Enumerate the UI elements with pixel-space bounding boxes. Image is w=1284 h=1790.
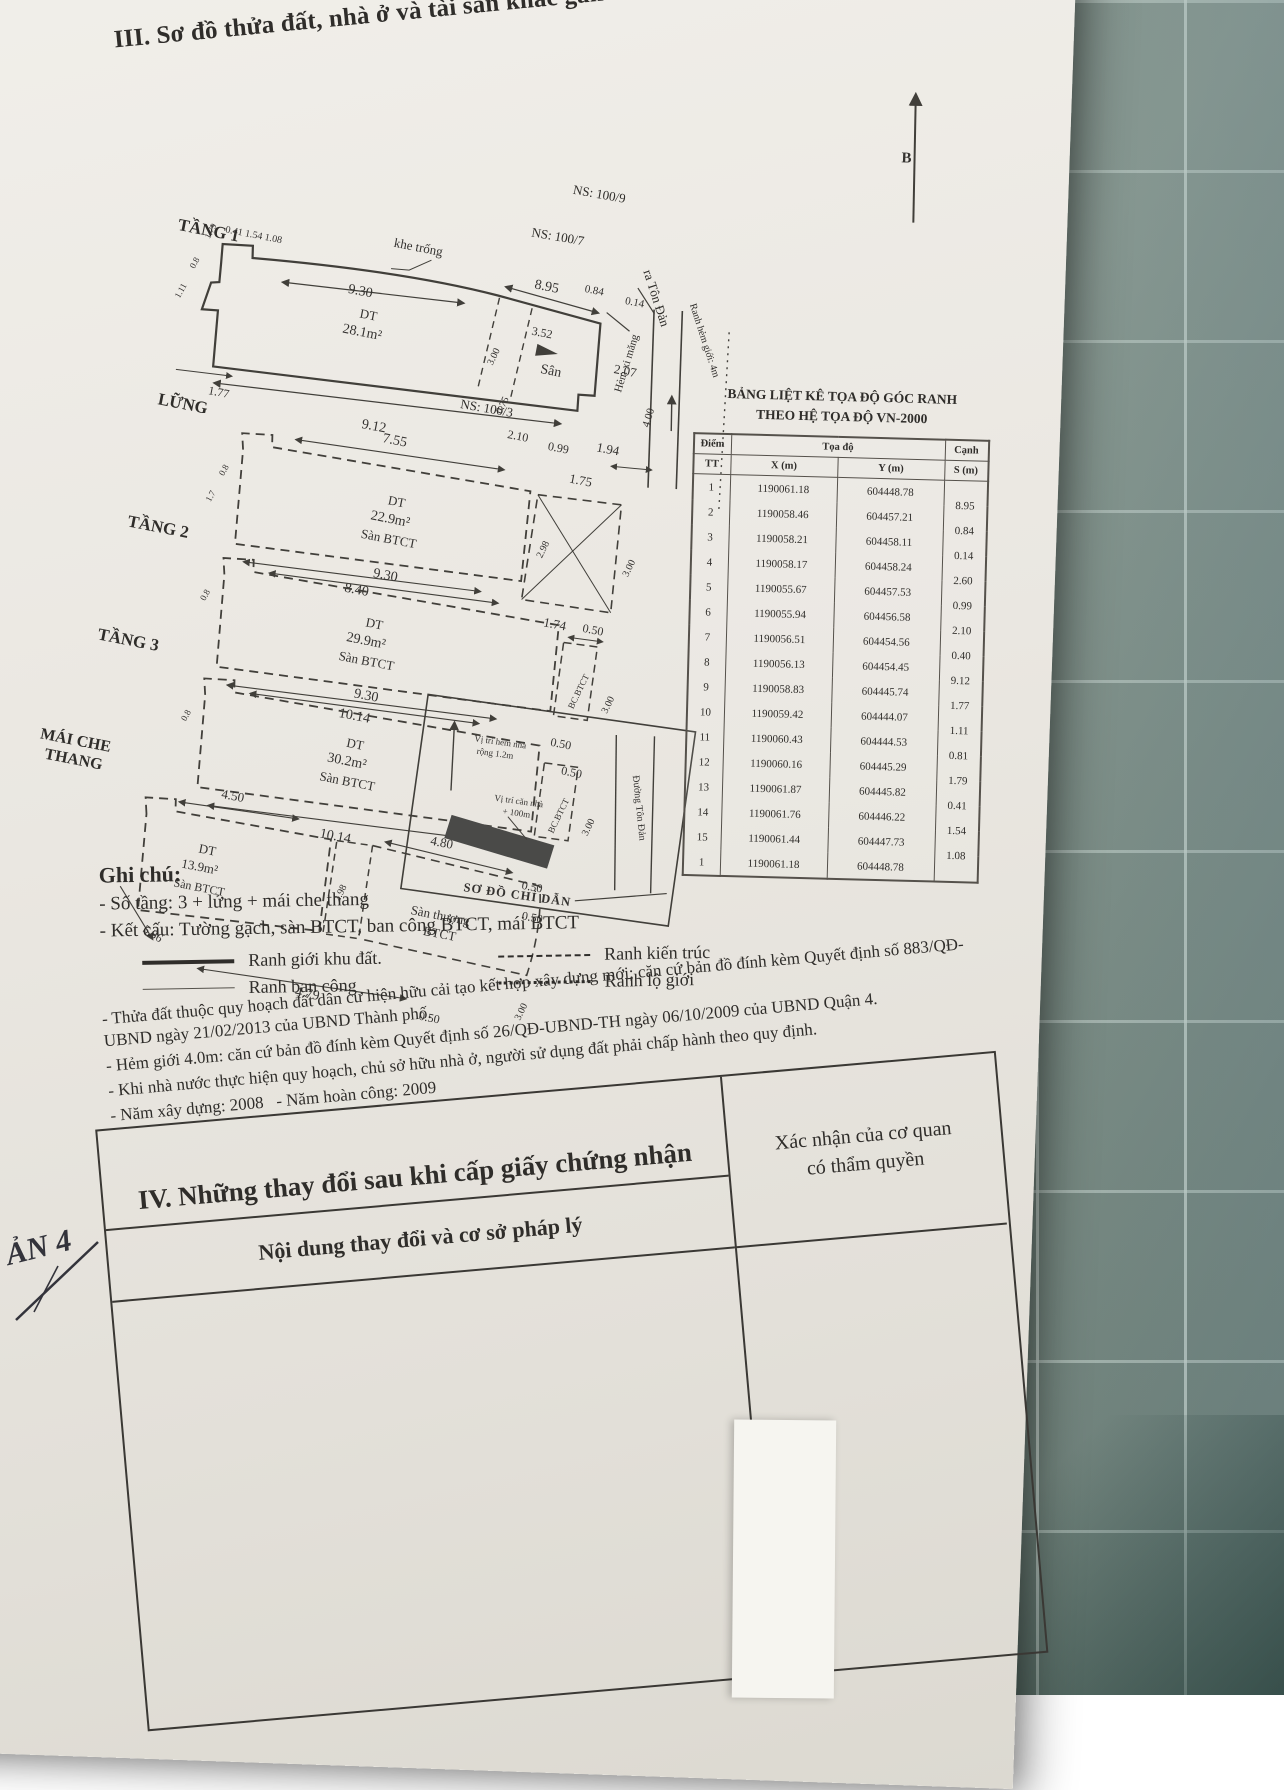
- north-label: B: [901, 150, 912, 166]
- coord-cell-x: 1190058.83: [724, 675, 832, 703]
- coord-cell-x: 1190055.67: [727, 575, 835, 603]
- coord-cell-tt: 14: [684, 799, 722, 825]
- dim-top: 9.30: [353, 686, 380, 705]
- col-header-y: Y (m): [837, 457, 944, 480]
- coord-cell-x: 1190055.94: [726, 600, 834, 628]
- dim-left-a: 0.8: [179, 708, 193, 723]
- edge-length-value: 1.54: [947, 824, 967, 836]
- dim-jog: 0.41 1.54 1.08: [224, 224, 283, 246]
- dt-label: DT: [365, 614, 385, 632]
- edge-length-value: 0.41: [947, 799, 967, 811]
- coord-cell-tt: 5: [689, 574, 727, 600]
- coord-cell-y: 604445.82: [829, 778, 937, 806]
- edge-length-value: 2.10: [952, 625, 972, 637]
- dim-352: 3.52: [531, 324, 554, 342]
- dim-top: 9.30: [372, 566, 399, 585]
- coord-cell-y: 604454.45: [832, 653, 940, 681]
- dim-left-a: 0.8: [198, 587, 212, 602]
- col-header-tt: TT: [693, 454, 731, 475]
- legend-label-boundary: Ranh giới khu đất.: [248, 948, 382, 971]
- coord-cell-tt: 15: [683, 824, 721, 850]
- col-header-x: X (m): [730, 455, 837, 478]
- dim-top-b: 8.95: [533, 277, 560, 296]
- coord-cell-y: 604454.56: [833, 628, 941, 656]
- coord-cell-tt: 1: [692, 474, 730, 500]
- edge-length-value: 1.11: [950, 725, 969, 737]
- col-header-edge: Cạnh: [945, 440, 989, 462]
- coord-cell-tt: 12: [685, 749, 723, 775]
- dim-300: 3.00: [600, 695, 618, 716]
- coord-cell-x: 1190058.46: [729, 500, 837, 528]
- coord-cell-x: 1190060.16: [722, 750, 830, 778]
- legend-sample-solid-thin: [143, 987, 235, 990]
- dim-194: 1.94: [595, 439, 621, 458]
- coord-cell-x: 1190060.43: [723, 725, 831, 753]
- house-note-line2: + 100m: [502, 806, 531, 820]
- coord-cell-x: 1190061.44: [720, 825, 828, 853]
- edge-length-value: 1.79: [948, 774, 968, 786]
- house-note-line1: Vị trí căn nhà: [494, 793, 544, 810]
- paper-strip-overlay: [732, 1420, 836, 1699]
- coord-cell-y: 604446.22: [828, 803, 936, 831]
- coord-cell-tt: 7: [688, 624, 726, 650]
- coord-cell-s: 8.95: [943, 480, 987, 507]
- coord-cell-x: 1190058.21: [728, 525, 836, 553]
- edge-length-value: 0.81: [949, 750, 969, 762]
- street-label: Đường Tôn Đản: [630, 775, 648, 841]
- edge-length-value: 9.12: [951, 675, 971, 687]
- coord-cell-y: 604458.11: [835, 528, 943, 556]
- coord-cell-tt: 3: [691, 524, 729, 550]
- dim-left-b: 1.7: [203, 488, 217, 503]
- coord-cell-tt: 4: [690, 549, 728, 575]
- ns-100-7-label: NS: 100/7: [530, 224, 585, 249]
- dt-label: DT: [345, 735, 365, 753]
- coord-cell-x: 1190061.18: [730, 475, 838, 503]
- coord-cell-x: 1190061.76: [721, 800, 829, 828]
- col-header-point: Điểm: [693, 433, 731, 454]
- coord-table-body: 11190061.18604448.788.9521190058.4660445…: [682, 474, 987, 883]
- dim-top: 4.50: [220, 786, 245, 805]
- dim-top-a: 9.30: [347, 282, 374, 301]
- edge-length-value: 2.60: [953, 575, 973, 587]
- coord-cell-x: 1190059.42: [724, 700, 832, 728]
- coord-cell-tt: 6: [689, 599, 727, 625]
- dt-label: DT: [387, 492, 407, 510]
- dim-left-b: 0.8: [187, 255, 201, 270]
- dim-left-c: 1.11: [172, 281, 188, 299]
- north-arrow: B: [895, 80, 940, 231]
- col-header-s: S (m): [944, 460, 988, 481]
- dim-175: 1.75: [568, 471, 593, 490]
- coord-cell-tt: 10: [686, 699, 724, 725]
- section-4-table: IV. Những thay đổi sau khi cấp giấy chứn…: [95, 1051, 1048, 1731]
- edge-length-value: 8.95: [955, 500, 975, 512]
- dt-label: DT: [198, 841, 218, 859]
- edge-length-value: 0.99: [953, 600, 973, 612]
- legend-sample-dashed: [498, 954, 590, 958]
- dim-084: 0.84: [584, 283, 606, 299]
- balcony-label: BC.BTCT: [566, 672, 592, 710]
- edge-length-value: 1.77: [950, 700, 970, 712]
- legend-item-boundary: Ranh giới khu đất.: [142, 946, 472, 973]
- edge-length-value: 0.84: [955, 525, 975, 537]
- coordinate-table: Điểm Tọa độ Cạnh TT X (m) Y (m) S (m) 11…: [681, 432, 990, 884]
- photo-of-document: { "header": { "title": "III. Sơ đồ thửa …: [0, 0, 1284, 1695]
- coord-cell-tt: 11: [686, 724, 724, 750]
- coord-cell-tt: 2: [691, 499, 729, 525]
- area-value: 30.2m²: [326, 751, 368, 773]
- edge-length-value: 0.14: [954, 550, 974, 562]
- khe-trong-label: khe trống: [393, 235, 445, 259]
- area-value: 22.9m²: [369, 508, 411, 530]
- dim-050: 0.50: [581, 621, 604, 639]
- ns-100-9-label: NS: 100/9: [572, 182, 627, 207]
- dim-300: 3.00: [485, 347, 503, 368]
- pen-stroke: [0, 1228, 130, 1328]
- coord-cell-y: 604445.74: [831, 678, 939, 706]
- legend-sample-solid-thick: [142, 959, 234, 965]
- coord-cell-y: 604457.53: [834, 578, 942, 606]
- dim-014: 0.14: [624, 295, 646, 311]
- document-paper: III. Sơ đồ thửa đất, nhà ở và tài sản kh…: [0, 0, 1077, 1789]
- coord-cell-y: 604458.24: [835, 553, 943, 581]
- coord-cell-tt: 9: [687, 674, 725, 700]
- coord-cell-tt: 8: [687, 649, 725, 675]
- coord-cell-y: 604457.21: [836, 503, 944, 531]
- coord-cell-y: 604445.29: [829, 753, 937, 781]
- coord-cell-y: 604448.78: [837, 477, 945, 505]
- coordinate-table-block: BẢNG LIỆT KÊ TỌA ĐỘ GÓC RANH THEO HỆ TỌA…: [680, 383, 993, 884]
- section-4-content-cell: [112, 1248, 772, 1727]
- coord-cell-x: 1190056.13: [725, 650, 833, 678]
- coord-cell-tt: 13: [684, 774, 722, 800]
- coord-cell-y: 604456.58: [833, 603, 941, 631]
- coord-cell-y: 604444.07: [831, 703, 939, 731]
- dim-300: 3.00: [621, 558, 639, 579]
- coord-cell-y: 604444.53: [830, 728, 938, 756]
- edge-length-value: 0.40: [951, 650, 971, 662]
- coord-cell-x: 1190056.51: [726, 625, 834, 653]
- section-4-confirm-header: Xác nhận của cơ quan có thẩm quyền: [720, 1053, 1007, 1248]
- dim-left-a: 1.79: [202, 221, 219, 240]
- area-value: 29.9m²: [345, 630, 387, 652]
- coord-cell-x: 1190058.17: [728, 550, 836, 578]
- dt-label: DT: [359, 306, 379, 324]
- dim-298: 2.98: [535, 539, 553, 560]
- area-value: 28.1m²: [341, 322, 383, 344]
- dim-top: 7.55: [381, 431, 408, 450]
- dim-left-a: 0.8: [217, 462, 231, 477]
- section-3-title: III. Sơ đồ thửa đất, nhà ở và tài sản kh…: [113, 0, 733, 54]
- coord-cell-x: 1190061.87: [722, 775, 830, 803]
- san-label: Sân: [539, 362, 562, 381]
